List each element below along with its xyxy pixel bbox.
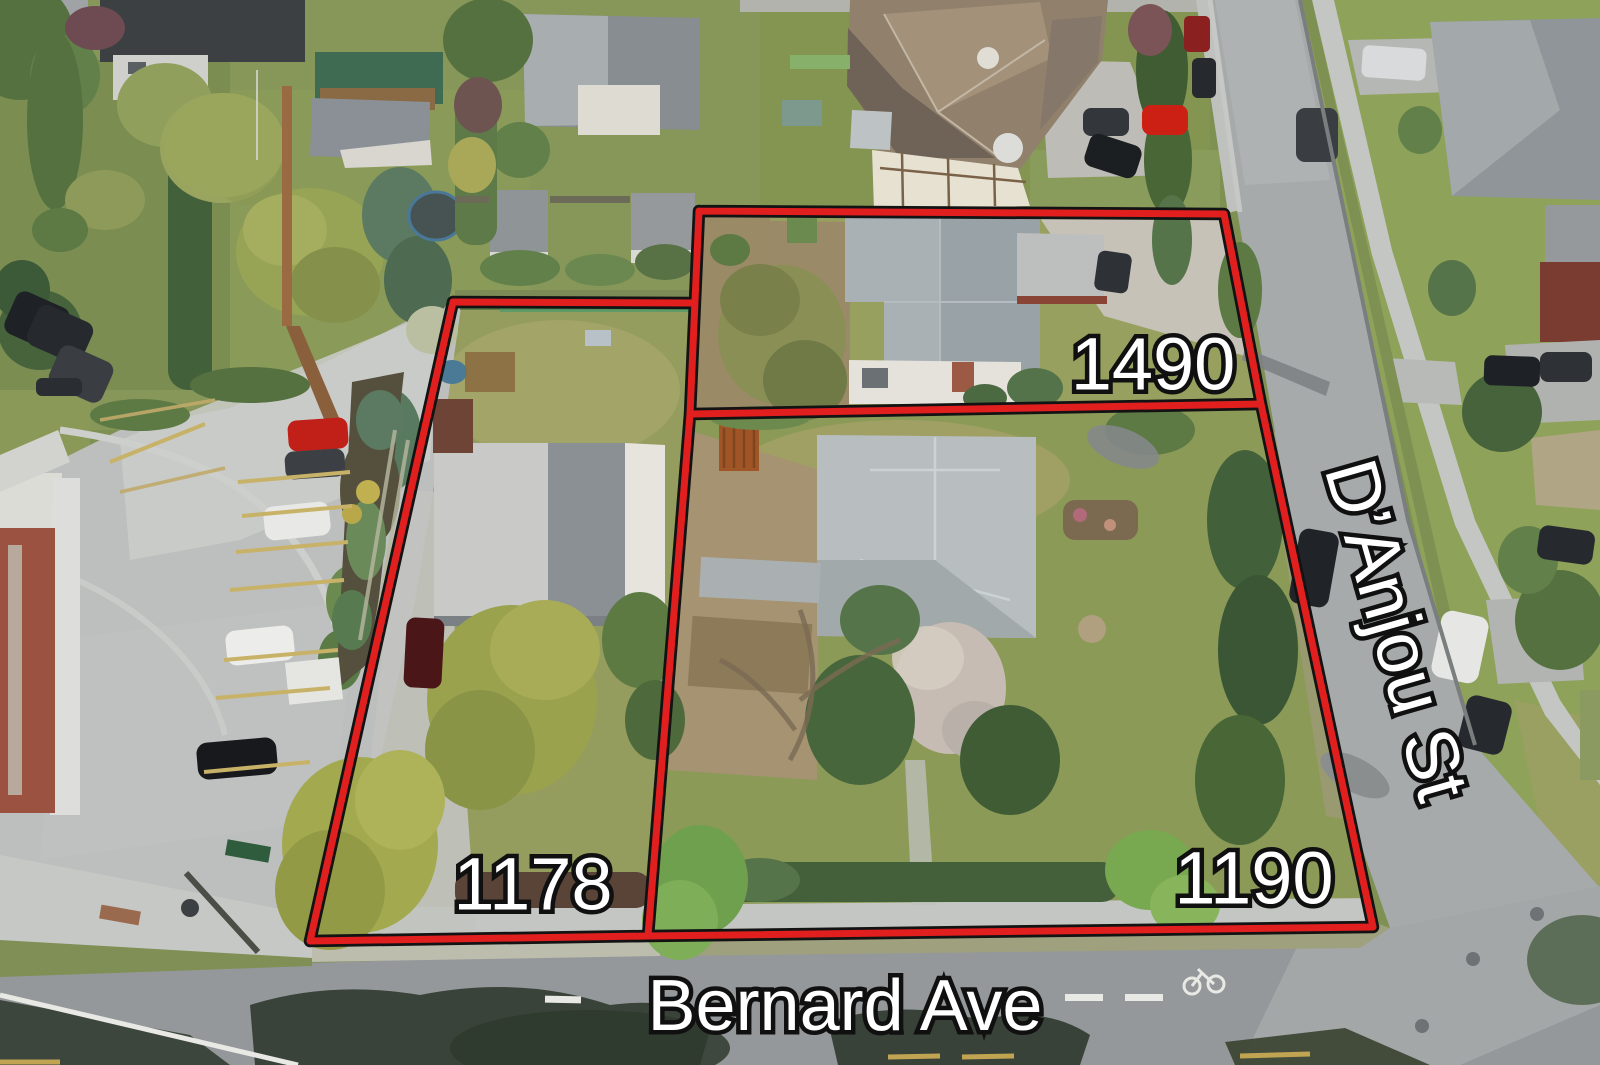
svg-text:1490: 1490 bbox=[1071, 323, 1236, 406]
svg-text:Bernard Ave: Bernard Ave bbox=[648, 966, 1043, 1046]
svg-text:1190: 1190 bbox=[1174, 837, 1333, 920]
svg-text:1178: 1178 bbox=[453, 843, 612, 926]
